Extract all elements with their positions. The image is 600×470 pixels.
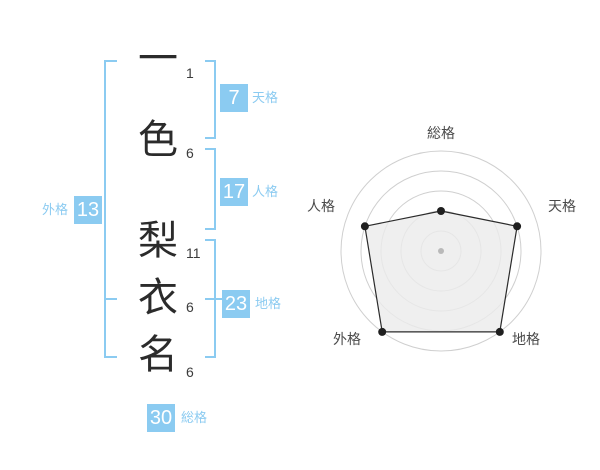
name-character: 名 [136, 335, 180, 375]
radar-axis-label-tenkaku: 天格 [548, 198, 576, 214]
stroke-count: 6 [186, 365, 210, 379]
tenkaku-value-badge: 7 [220, 84, 248, 112]
radar-chart: 総格 天格 地格 外格 人格 [295, 108, 595, 358]
stroke-count: 11 [186, 246, 210, 260]
name-character: 梨 [136, 221, 180, 261]
radar-axis-label-soukaku: 総格 [427, 125, 455, 141]
name-fortune-panel: 一 色 梨 衣 名 1 6 11 6 6 7 天格 17 人格 23 地格 外格… [0, 0, 600, 470]
tenkaku-label: 天格 [252, 84, 278, 112]
name-character: 衣 [136, 278, 180, 318]
soukaku-label: 総格 [181, 404, 207, 432]
radar-axis-label-jinkaku: 人格 [307, 198, 335, 214]
name-character: 一 [136, 39, 180, 79]
gaikaku-label: 外格 [40, 196, 68, 224]
chikaku-value-badge: 23 [222, 290, 250, 318]
radar-axis-label-gaikaku: 外格 [333, 331, 361, 347]
radar-axis-label-chikaku: 地格 [512, 331, 540, 347]
name-character: 色 [136, 120, 180, 160]
stroke-count: 6 [186, 300, 210, 314]
jinkaku-label: 人格 [252, 178, 278, 206]
radar-data-polygon [365, 211, 517, 332]
radar-center-dot [438, 248, 444, 254]
stroke-count: 1 [186, 66, 210, 80]
jinkaku-value-badge: 17 [220, 178, 248, 206]
chikaku-label: 地格 [255, 290, 281, 318]
gaikaku-value-badge: 13 [74, 196, 102, 224]
soukaku-value-badge: 30 [147, 404, 175, 432]
